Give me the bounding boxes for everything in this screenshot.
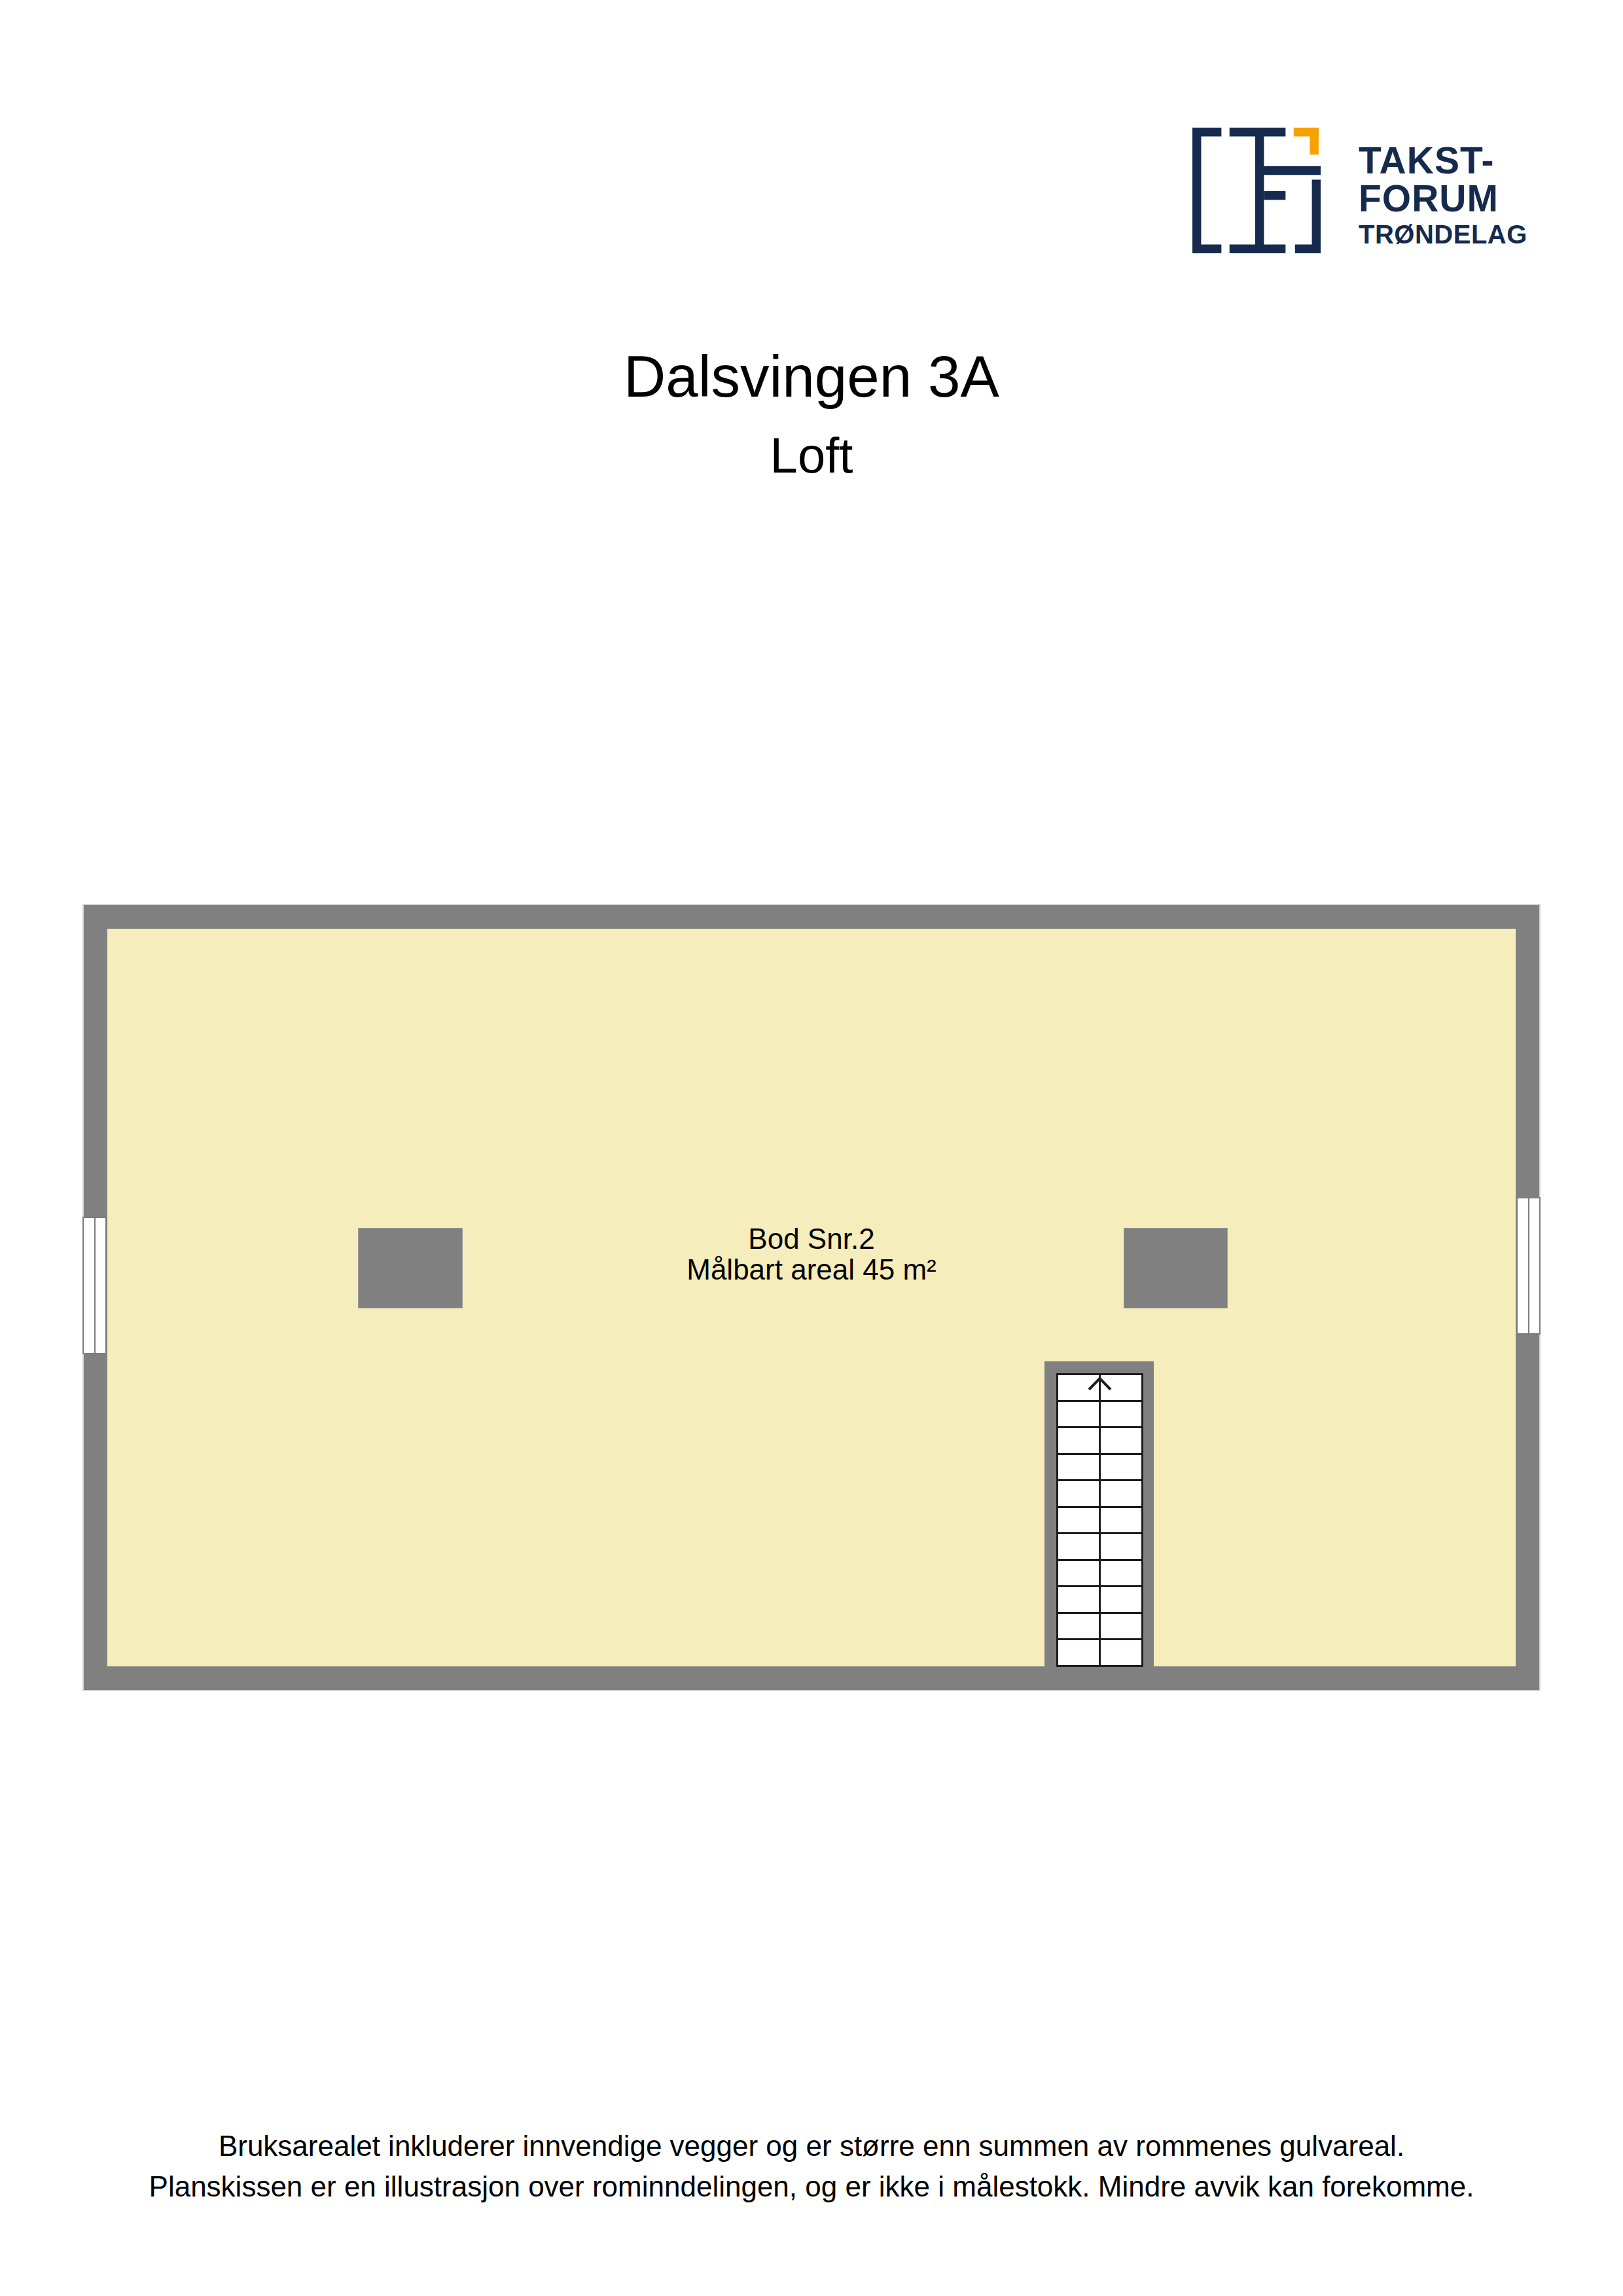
page-title: Dalsvingen 3A (0, 348, 1623, 406)
floor-plan: Bod Snr.2 Målbart areal 45 m² (84, 905, 1539, 1690)
brand-line-2: FORUM (1359, 179, 1527, 217)
stair-center-line (1099, 1375, 1101, 1665)
staircase (1056, 1373, 1143, 1667)
page: { "brand": { "line1": "TAKST-", "line2":… (0, 0, 1623, 2296)
brand-wordmark: TAKST- FORUM TRØNDELAG (1359, 141, 1527, 249)
disclaimer-line-1: Bruksarealet inkluderer innvendige vegge… (0, 2126, 1623, 2166)
page-subtitle: Loft (0, 431, 1623, 480)
footer-disclaimer: Bruksarealet inkluderer innvendige vegge… (0, 2126, 1623, 2207)
stair-direction-arrow-icon (1058, 1375, 1141, 1395)
disclaimer-line-2: Planskissen er en illustrasjon over romi… (0, 2166, 1623, 2207)
plan-interior (107, 929, 1516, 1666)
room-label: Bod Snr.2 Målbart areal 45 m² (84, 1223, 1539, 1285)
room-area: Målbart areal 45 m² (84, 1254, 1539, 1285)
takstforum-logo-icon (1192, 128, 1321, 253)
room-name: Bod Snr.2 (84, 1223, 1539, 1254)
brand-line-3: TRØNDELAG (1359, 220, 1527, 249)
brand-line-1: TAKST- (1359, 141, 1527, 179)
